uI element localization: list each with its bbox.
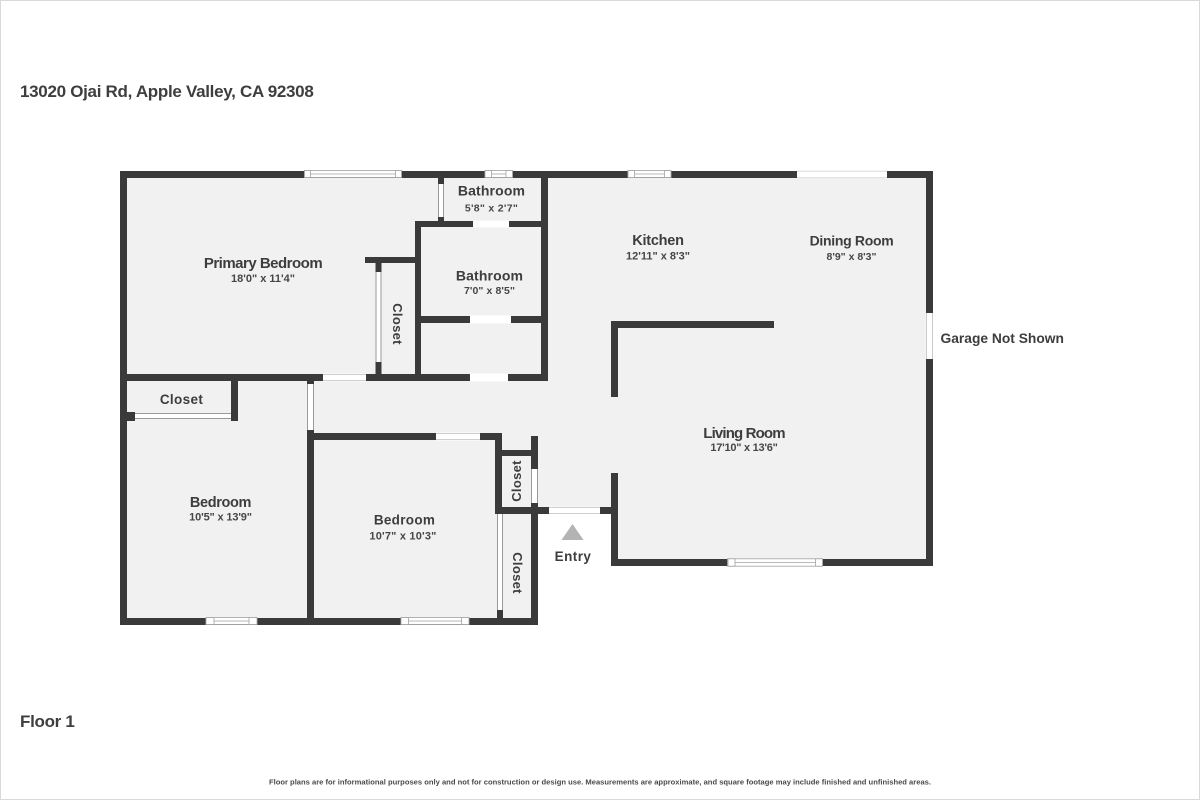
svg-text:Entry: Entry <box>555 549 592 564</box>
svg-text:10'5" x 13'9": 10'5" x 13'9" <box>189 512 252 524</box>
svg-text:Garage Not Shown: Garage Not Shown <box>941 331 1064 346</box>
svg-text:Floor 1: Floor 1 <box>20 712 75 731</box>
svg-text:8'9" x 8'3": 8'9" x 8'3" <box>827 251 877 263</box>
svg-text:Floor plans are for informatio: Floor plans are for informational purpos… <box>269 778 931 787</box>
svg-text:Bedroom: Bedroom <box>190 495 251 511</box>
svg-text:Bathroom: Bathroom <box>456 268 523 284</box>
svg-text:Closet: Closet <box>510 552 525 594</box>
svg-text:Closet: Closet <box>390 303 405 345</box>
svg-text:Living Room: Living Room <box>703 425 785 442</box>
svg-text:Kitchen: Kitchen <box>632 233 683 249</box>
svg-text:12'11" x 8'3": 12'11" x 8'3" <box>626 251 690 263</box>
svg-text:18'0" x 11'4": 18'0" x 11'4" <box>231 273 295 285</box>
svg-text:Primary Bedroom: Primary Bedroom <box>204 255 323 272</box>
svg-text:5'8" x 2'7": 5'8" x 2'7" <box>465 203 518 215</box>
svg-text:Closet: Closet <box>160 392 204 407</box>
svg-text:17'10" x 13'6": 17'10" x 13'6" <box>710 442 777 454</box>
svg-text:10'7" x 10'3": 10'7" x 10'3" <box>369 531 436 543</box>
svg-text:Dining Room: Dining Room <box>810 233 894 249</box>
svg-text:7'0" x 8'5": 7'0" x 8'5" <box>464 285 515 297</box>
svg-text:Bathroom: Bathroom <box>458 183 525 199</box>
svg-text:Closet: Closet <box>509 460 524 502</box>
svg-text:Bedroom: Bedroom <box>374 513 435 528</box>
svg-text:13020 Ojai Rd, Apple Valley, C: 13020 Ojai Rd, Apple Valley, CA 92308 <box>20 82 313 101</box>
